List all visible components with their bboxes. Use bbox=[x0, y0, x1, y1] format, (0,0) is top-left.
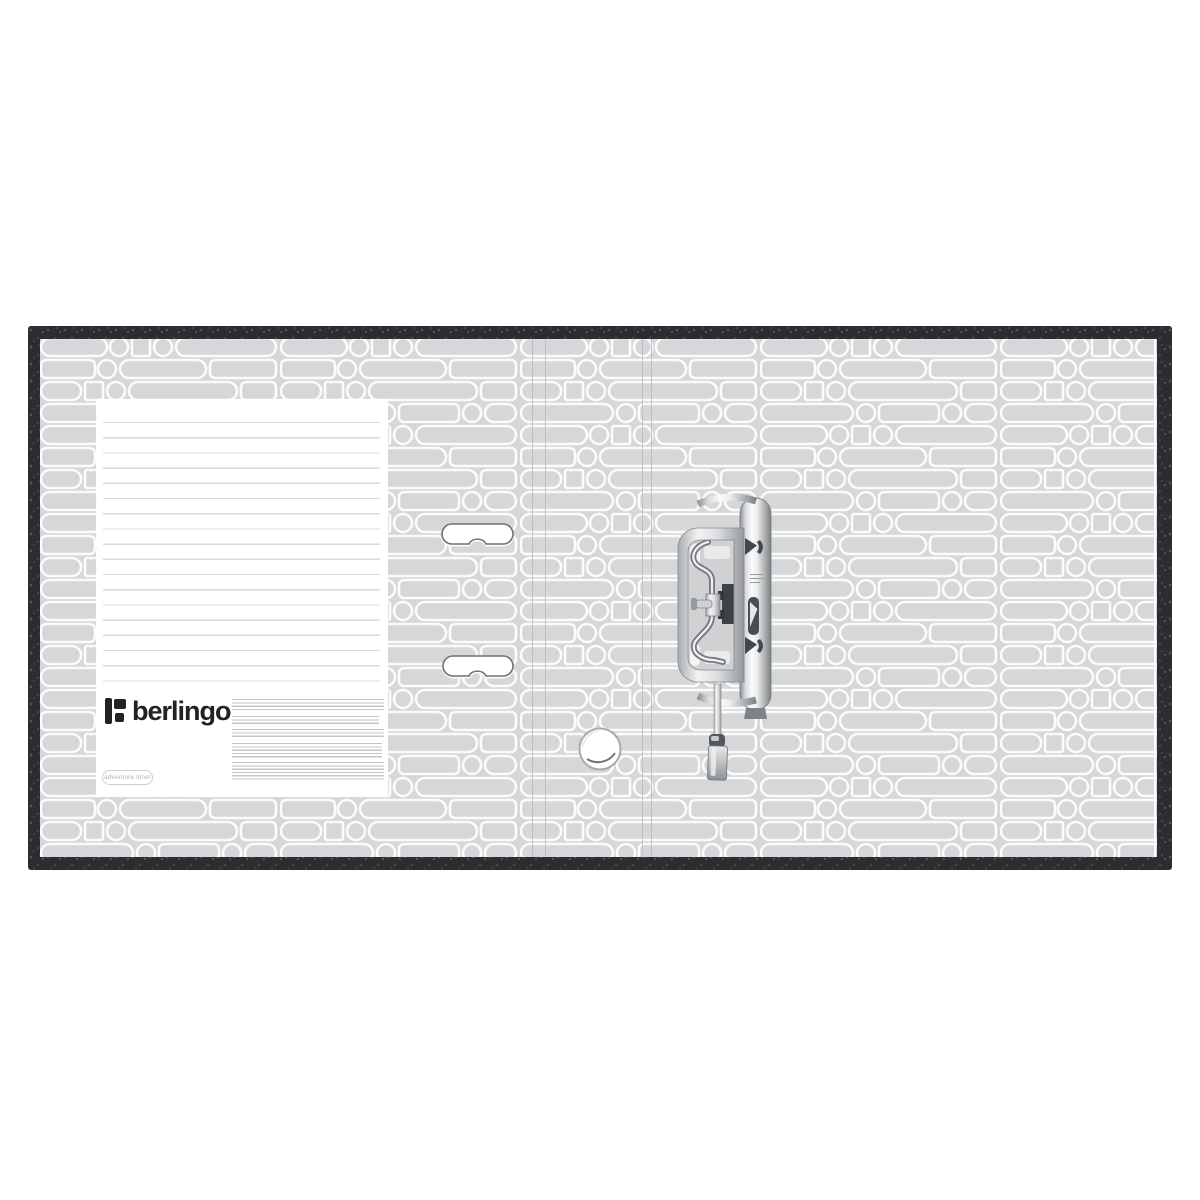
binder-cover-board: berlingo adventure time! bbox=[28, 326, 1172, 870]
finger-slot-bottom bbox=[441, 654, 516, 679]
label-panel: berlingo adventure time! bbox=[96, 399, 388, 797]
fine-print-paragraph bbox=[232, 762, 384, 781]
ruled-lines bbox=[103, 408, 380, 694]
fine-print-paragraph bbox=[232, 743, 382, 759]
inner-liner: berlingo adventure time! bbox=[40, 339, 1157, 857]
spine-fold-line bbox=[532, 339, 533, 857]
fine-print-paragraph bbox=[232, 699, 384, 712]
spine-fold-line bbox=[651, 339, 652, 857]
fine-print-paragraph bbox=[232, 716, 379, 726]
product-photo: berlingo adventure time! bbox=[0, 0, 1200, 1200]
berlingo-logo: berlingo bbox=[105, 696, 231, 726]
multilingual-fine-print bbox=[232, 699, 384, 785]
spine-fold-line bbox=[545, 339, 546, 857]
lever-arch-mechanism bbox=[660, 488, 778, 788]
brand-wordmark: berlingo bbox=[132, 698, 231, 724]
berlingo-logo-icon bbox=[105, 698, 128, 724]
eyelet-hole bbox=[578, 727, 622, 771]
finger-slot-top bbox=[440, 522, 515, 547]
fine-print-paragraph bbox=[232, 729, 384, 739]
liner-paper-edge bbox=[1154, 339, 1156, 857]
spine-fold-line bbox=[642, 339, 643, 857]
mechanism-base-plate bbox=[740, 498, 771, 719]
adventure-time-badge: adventure time! bbox=[102, 770, 153, 785]
